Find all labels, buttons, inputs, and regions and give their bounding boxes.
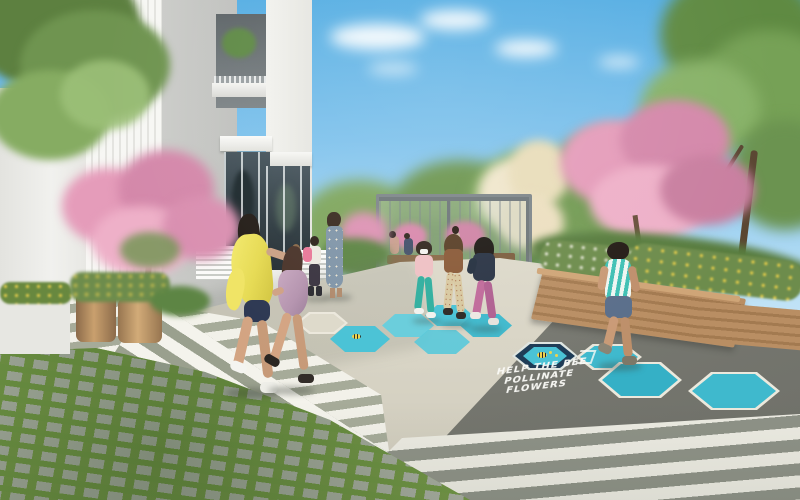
pink-blossom-tree: [660, 155, 755, 225]
shoe: [426, 312, 436, 318]
bee-trail-dot: [549, 351, 552, 354]
cloud: [598, 56, 640, 68]
shoe: [456, 312, 466, 319]
leg: [337, 288, 342, 297]
yellow-flowers: [0, 282, 72, 304]
balcony-plants: [222, 28, 256, 58]
cloud: [330, 24, 425, 50]
cloud: [420, 10, 490, 30]
pink-legging: [483, 281, 496, 320]
shoe: [470, 312, 481, 319]
figure-child-teal-leggings: [410, 244, 440, 326]
pergola-person-head: [389, 231, 396, 238]
balcony-railing: [214, 76, 268, 83]
pink-top: [415, 255, 433, 277]
shoe: [443, 308, 453, 315]
sneaker: [229, 359, 249, 375]
patterned-legging: [453, 273, 465, 314]
entrance-canopy: [220, 136, 272, 151]
brown-top: [444, 249, 463, 273]
bee-icon: [352, 334, 361, 339]
tree-foliage: [120, 232, 180, 268]
pergola-person-head: [452, 226, 459, 234]
low-planter-wall: [0, 298, 70, 354]
shoe: [414, 308, 424, 314]
figure-boy-striped: [592, 244, 644, 370]
bee-icon: [537, 352, 547, 358]
dark-jacket: [473, 253, 495, 281]
hair: [607, 242, 629, 260]
shoe: [298, 374, 314, 383]
pergola-post: [526, 197, 529, 271]
shoe: [488, 318, 499, 325]
leg: [330, 288, 335, 298]
pergola-person: [390, 236, 399, 254]
leg: [292, 314, 309, 371]
pergola-beam: [379, 197, 529, 201]
leg: [620, 317, 633, 358]
long-dress: [326, 226, 343, 288]
teal-legging: [424, 277, 434, 313]
figure-girl-lavender: [262, 248, 322, 396]
shrub: [150, 286, 210, 316]
denim-shorts: [605, 296, 632, 318]
cloud: [368, 62, 418, 75]
teal-legging: [414, 276, 425, 311]
face-mask: [420, 249, 428, 254]
courtyard-rendering: HELP THE BEE POLLINATE FLOWERS: [0, 0, 800, 500]
cloud: [495, 40, 557, 57]
striped-tank-top: [605, 259, 631, 299]
balcony-slab: [212, 83, 270, 97]
figure-child-dark-jacket: [466, 240, 502, 334]
shoe: [622, 356, 637, 365]
head: [310, 236, 319, 246]
bee-trail-dot: [555, 354, 558, 357]
pergola-person-head: [404, 233, 410, 239]
branch-foliage: [60, 60, 150, 130]
